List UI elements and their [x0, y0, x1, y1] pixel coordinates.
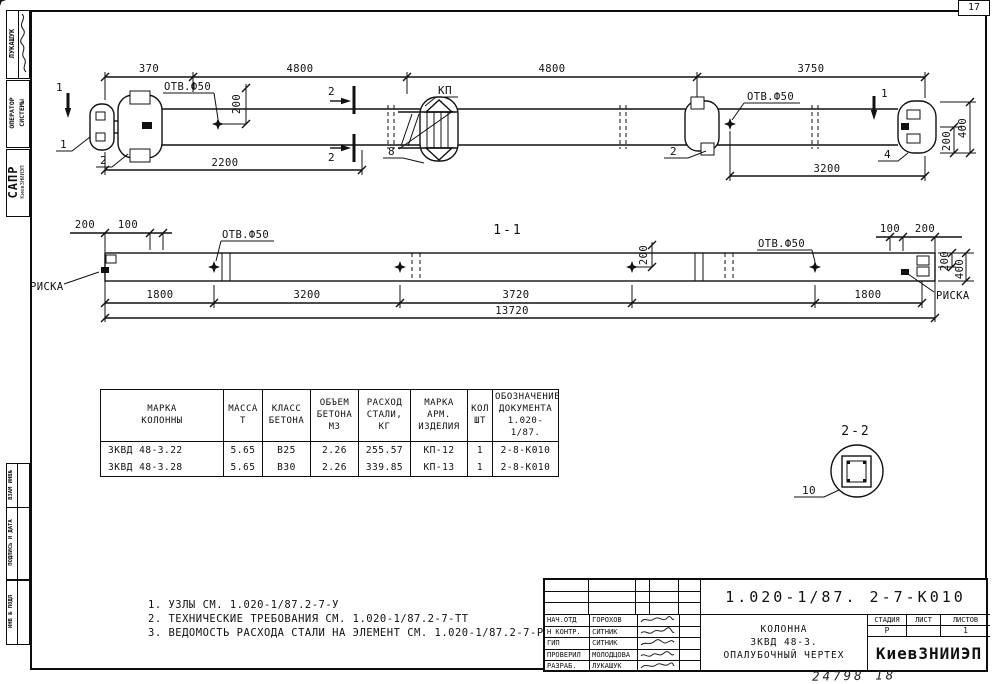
spec-cell: В25: [263, 441, 311, 459]
note-line: 3. ВЕДОМОСТЬ РАСХОДА СТАЛИ НА ЭЛЕМЕНТ СМ…: [148, 626, 550, 640]
signature-row: Н КОНТР. СИТНИК: [545, 626, 700, 638]
sheet-value: [907, 626, 941, 637]
spec-header-cell: КЛАСС БЕТОНА: [263, 390, 311, 442]
riska-label-right: РИСКА: [936, 290, 970, 302]
dim-3720: 3720: [503, 289, 530, 301]
spec-cell: 5.65: [224, 459, 263, 477]
signature-row: НАЧ.ОТД ГОРОХОВ: [545, 615, 700, 626]
signature-scribble: [638, 627, 680, 638]
hole-label-right: ОТВ.Ф50: [758, 238, 805, 250]
notes: 1. УЗЛЫ СМ. 1.020-1/87.2-7-У 2. ТЕХНИЧЕС…: [148, 598, 550, 640]
svg-text:2: 2: [328, 151, 335, 164]
spec-cell: 2-8-К010: [493, 459, 559, 477]
sheets-label: ЛИСТОВ: [941, 615, 990, 626]
elevation-view: 370 4800 4800 3750: [56, 63, 976, 181]
hole-label-left: ОТВ.Ф50: [222, 229, 269, 241]
signature-scribble: [638, 615, 680, 626]
dim-3200: 3200: [814, 163, 841, 175]
section-mark-1-right: 1: [871, 87, 888, 120]
svg-text:8: 8: [388, 145, 395, 158]
console-label: КП: [438, 84, 452, 97]
spec-header-cell: МАРКА КОЛОННЫ: [101, 390, 224, 442]
signature-row: РАЗРАБ. ЛУКАШУК: [545, 660, 700, 672]
dim-100-tr: 100: [880, 223, 900, 235]
hole-marker: [394, 261, 406, 273]
dim-200-end: 200: [941, 131, 953, 151]
hole-label-left: ОТВ.Ф50: [164, 81, 211, 93]
spec-header-cell: ОБОЗНАЧЕНИЕ ДОКУМЕНТА 1.020-1/87.: [493, 390, 559, 442]
dim-100-tl: 100: [118, 219, 138, 231]
signature-scribble: [638, 650, 680, 661]
spec-header-row: МАРКА КОЛОННЫ МАССА Т КЛАСС БЕТОНА ОБЪЕМ…: [101, 390, 559, 442]
spec-cell: 339.85: [359, 459, 411, 477]
stage-grid: СТАДИЯ ЛИСТ ЛИСТОВ Р 1 КиевЗНИИЭП: [867, 615, 990, 670]
joint-node-middle: [685, 97, 719, 155]
node-callout-1: 1: [56, 137, 90, 151]
svg-text:4: 4: [884, 148, 891, 161]
note-line: 2. ТЕХНИЧЕСКИЕ ТРЕБОВАНИЯ СМ. 1.020-1/87…: [148, 612, 550, 626]
dim-200-tl: 200: [75, 219, 95, 231]
dim-370: 370: [139, 63, 159, 75]
spec-cell: КП-12: [411, 441, 468, 459]
dim-1800-a: 1800: [147, 289, 174, 301]
end-detail-right: [898, 101, 936, 153]
dim-200-hole: 200: [231, 94, 243, 114]
end-detail-left: [90, 91, 162, 162]
dim-200-tr: 200: [915, 223, 935, 235]
drawing-sheet: 17 ЛУКАШУК ОПЕРАТОР СИСТЕМЫ САПР КиевЗНИ…: [0, 0, 996, 684]
signature-rows: НАЧ.ОТД ГОРОХОВ Н КОНТР. СИТНИК ГИП СИТН…: [545, 615, 700, 670]
node-callout-10: 10: [794, 484, 839, 497]
spec-row: ЗКВД 48-3.28 5.65 В30 2.26 339.85 КП-13 …: [101, 459, 559, 477]
dim-200-mid: 200: [638, 245, 650, 265]
spec-cell: КП-13: [411, 459, 468, 477]
section-2-2-view: 2-2 10: [794, 424, 883, 497]
dim-1800-b: 1800: [855, 289, 882, 301]
note-line: 1. УЗЛЫ СМ. 1.020-1/87.2-7-У: [148, 598, 550, 612]
dim-200-end: 200: [939, 251, 951, 271]
signature-scribble: [638, 661, 680, 672]
signature-row: ПРОВЕРИЛ МОЛОДЦОВА: [545, 649, 700, 661]
svg-text:1: 1: [56, 81, 63, 94]
section-1-1-view: 1-1 ОТВ.Ф50 ОТВ.Ф50: [30, 219, 974, 322]
riska-mark: [101, 267, 109, 273]
svg-text:1: 1: [60, 138, 67, 151]
dim-4800-a: 4800: [287, 63, 314, 75]
console-detail: [398, 97, 458, 161]
svg-text:2: 2: [670, 145, 677, 158]
spec-cell: В30: [263, 459, 311, 477]
dim-400-end: 400: [957, 118, 969, 138]
spec-cell: 1: [468, 459, 493, 477]
dim-400-end: 400: [954, 259, 966, 279]
signature-scribble: [638, 638, 680, 649]
spec-row: ЗКВД 48-3.22 5.65 В25 2.26 255.57 КП-12 …: [101, 441, 559, 459]
spec-header-cell: ОБЪЕМ БЕТОНА М3: [311, 390, 359, 442]
svg-text:10: 10: [802, 484, 816, 497]
doc-number: 1.020-1/87. 2-7-К010: [700, 580, 990, 615]
spec-cell: ЗКВД 48-3.22: [101, 441, 224, 459]
spec-cell: 2.26: [311, 441, 359, 459]
section-mark-2-bottom: 2: [328, 134, 354, 164]
dim-2200: 2200: [212, 157, 239, 169]
hole-label-right: ОТВ.Ф50: [747, 91, 794, 103]
section-mark-1-left: 1: [56, 81, 71, 118]
svg-text:2: 2: [100, 154, 107, 167]
riska-label-left: РИСКА: [30, 281, 64, 293]
organization-name: КиевЗНИИЭП: [868, 637, 990, 670]
stage-label: СТАДИЯ: [868, 615, 907, 626]
svg-text:2: 2: [328, 85, 335, 98]
spec-cell: 1: [468, 441, 493, 459]
sheet-label: ЛИСТ: [907, 615, 941, 626]
handwritten-inventory-number: 24798 18: [812, 667, 896, 683]
drawing-subject: КОЛОННА ЗКВД 48-3. ОПАЛУБОЧНЫЙ ЧЕРТЕХ: [700, 615, 867, 670]
hole-marker: [724, 118, 736, 130]
section-title: 1-1: [493, 223, 522, 238]
spec-table: МАРКА КОЛОННЫ МАССА Т КЛАСС БЕТОНА ОБЪЕМ…: [100, 389, 559, 477]
dim-4800-b: 4800: [539, 63, 566, 75]
dim-3200: 3200: [294, 289, 321, 301]
spec-header-cell: МАССА Т: [224, 390, 263, 442]
svg-text:1: 1: [881, 87, 888, 100]
revision-grid: [545, 580, 700, 615]
spec-header-cell: КОЛ ШТ: [468, 390, 493, 442]
dim-13720: 13720: [495, 305, 529, 317]
spec-header-cell: РАСХОД СТАЛИ, КГ: [359, 390, 411, 442]
hole-marker: [208, 261, 220, 273]
spec-header-cell: МАРКА АРМ. ИЗДЕЛИЯ: [411, 390, 468, 442]
signature-row: ГИП СИТНИК: [545, 637, 700, 649]
spec-cell: 2.26: [311, 459, 359, 477]
dim-3750: 3750: [798, 63, 825, 75]
spec-cell: ЗКВД 48-3.28: [101, 459, 224, 477]
spec-cell: 255.57: [359, 441, 411, 459]
hole-marker: [809, 261, 821, 273]
riska-mark: [901, 269, 909, 275]
sheets-value: 1: [941, 626, 990, 637]
node-callout-2-left: 2: [96, 154, 128, 167]
title-block: 1.020-1/87. 2-7-К010 НАЧ.ОТД ГОРОХОВ Н К…: [543, 578, 988, 672]
spec-cell: 5.65: [224, 441, 263, 459]
riska-mark: [142, 122, 152, 129]
stage-value: Р: [868, 626, 907, 637]
section-title: 2-2: [841, 424, 870, 439]
spec-cell: 2-8-К010: [493, 441, 559, 459]
